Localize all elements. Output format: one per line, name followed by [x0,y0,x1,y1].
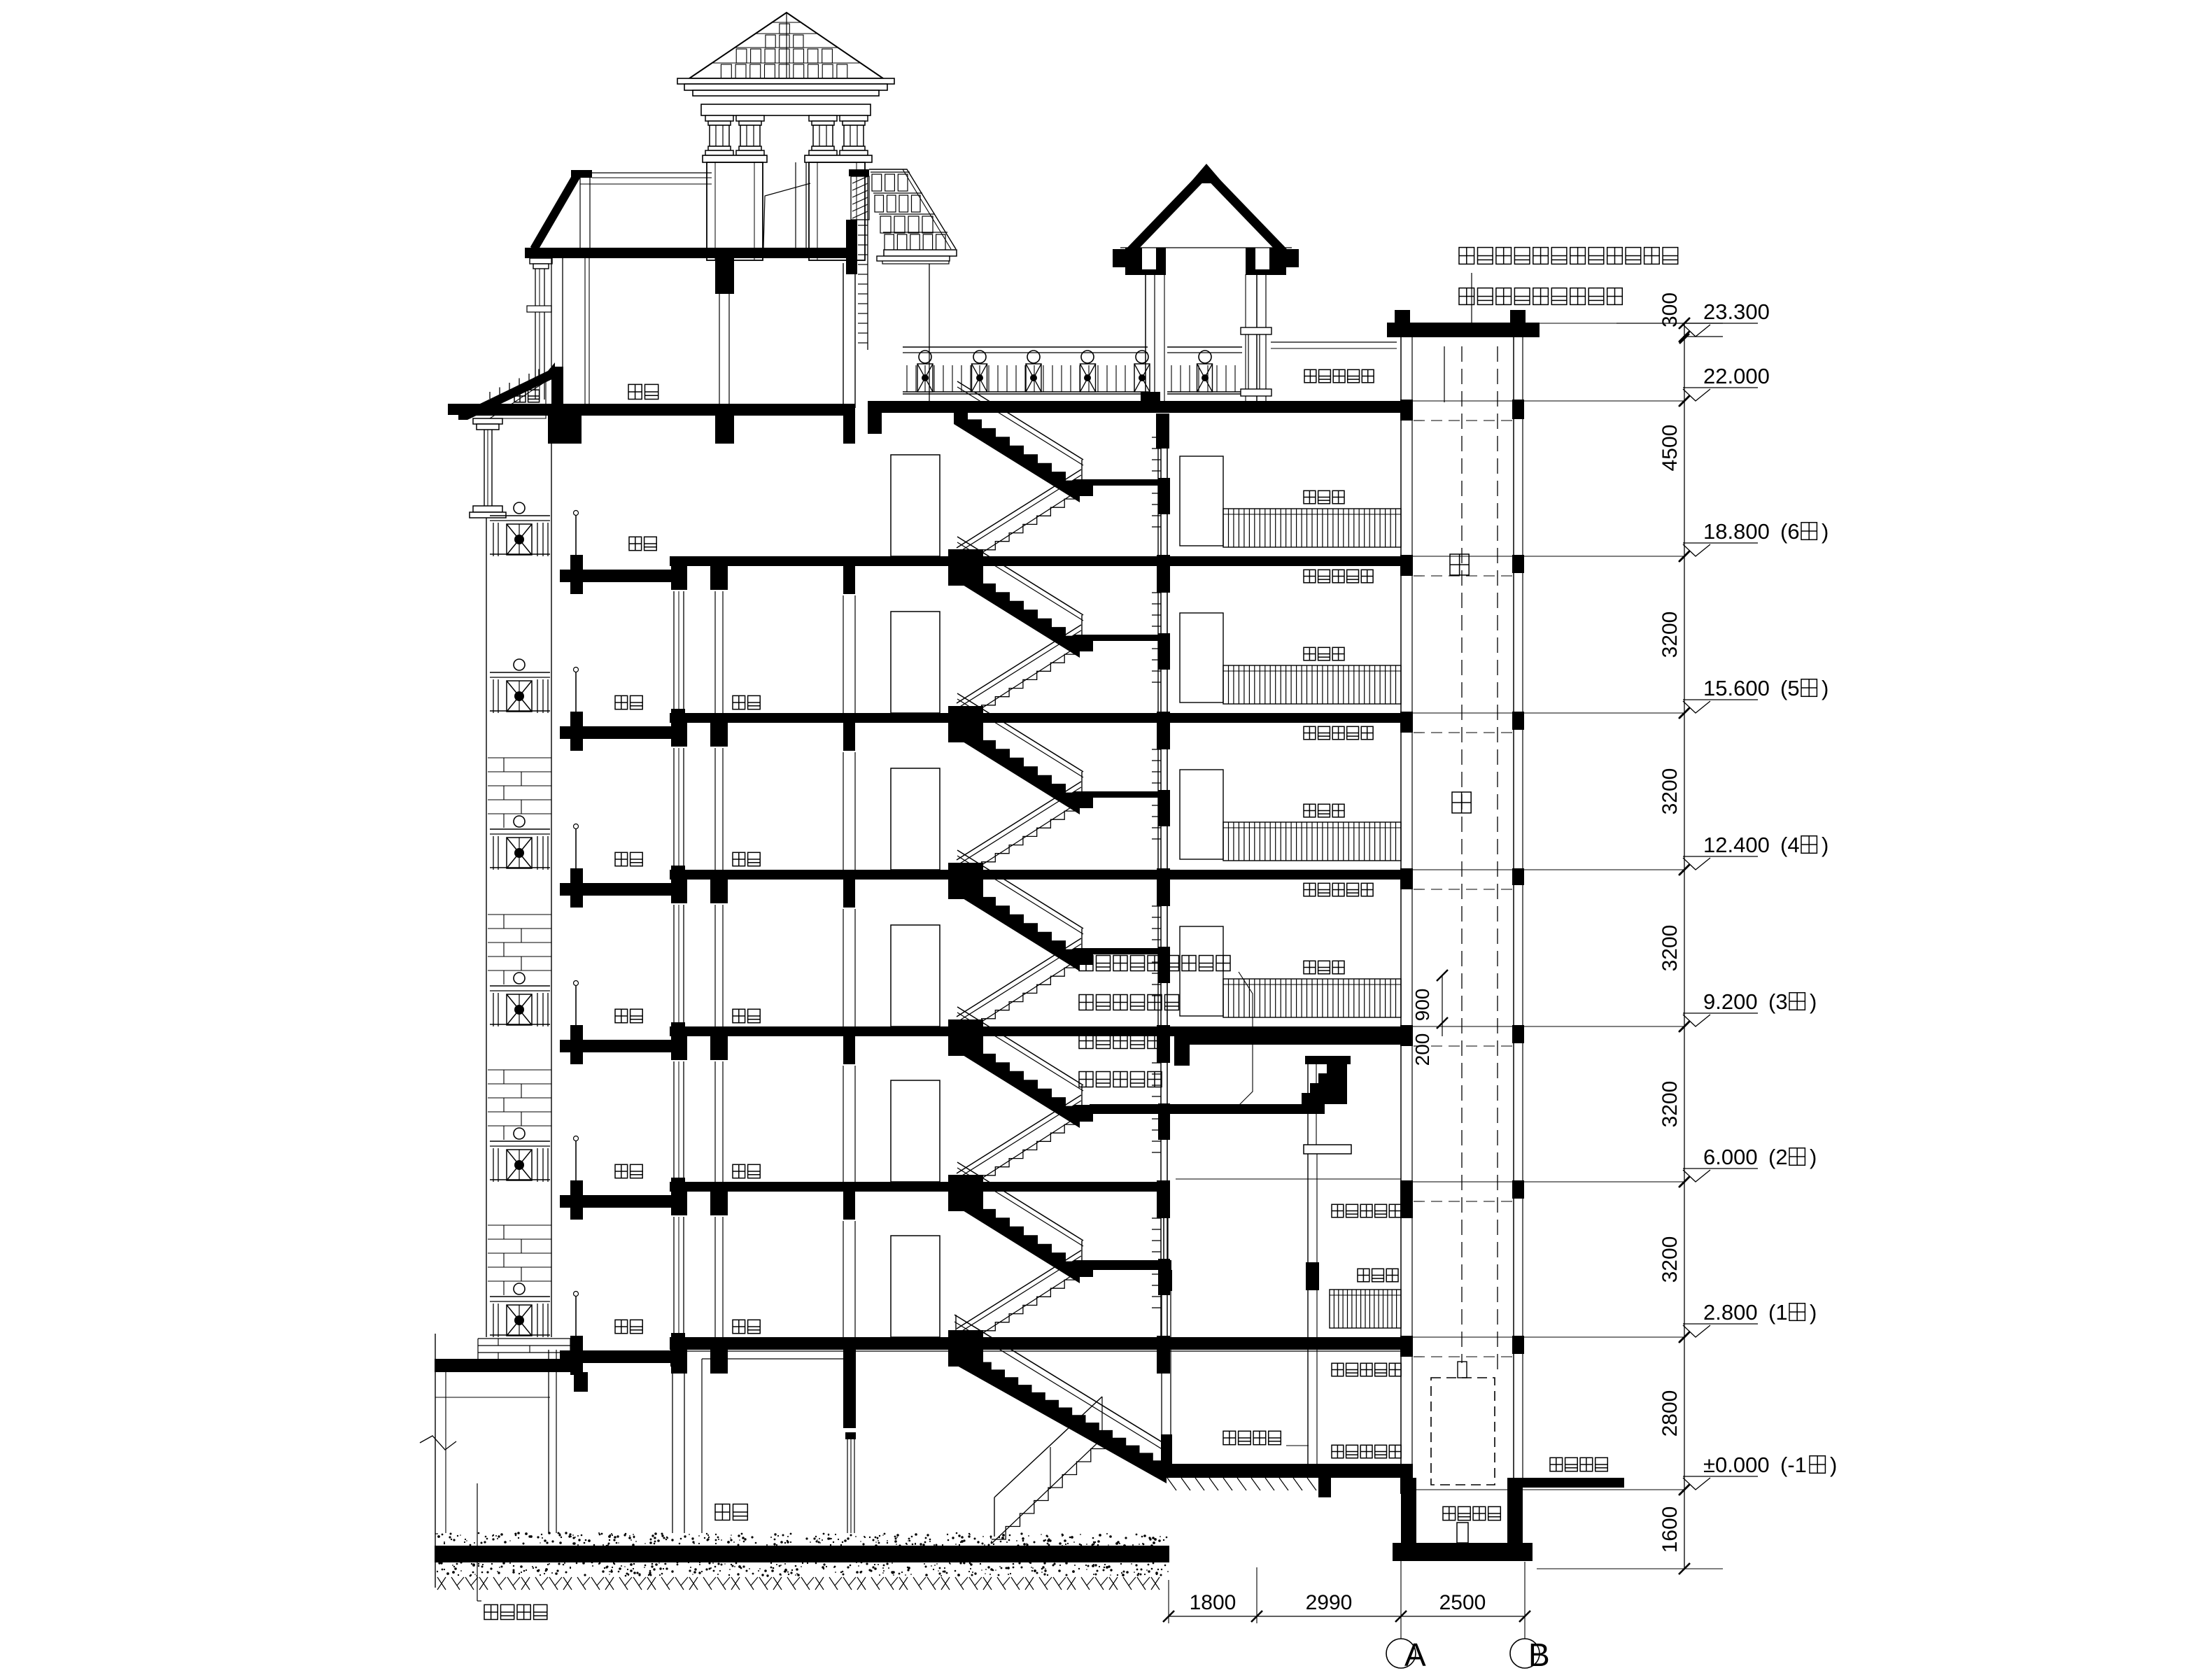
svg-text:18.800: 18.800 [1703,519,1770,544]
svg-text:3200: 3200 [1658,768,1682,815]
svg-text:2500: 2500 [1439,1591,1486,1614]
svg-text:): ) [1810,989,1817,1014]
svg-text:(4: (4 [1780,833,1800,857]
svg-text:): ) [1810,1300,1817,1325]
svg-text:23.300: 23.300 [1703,299,1770,324]
svg-text:22.000: 22.000 [1703,364,1770,388]
svg-text:3200: 3200 [1658,1081,1682,1128]
svg-text:1800: 1800 [1190,1591,1237,1614]
svg-text:): ) [1822,676,1829,700]
svg-text:±0.000: ±0.000 [1703,1453,1770,1477]
svg-text:12.400: 12.400 [1703,833,1770,857]
svg-text:): ) [1810,1145,1817,1169]
svg-text:2800: 2800 [1658,1390,1682,1437]
svg-text:200: 200 [1411,1033,1433,1066]
svg-text:): ) [1822,833,1829,857]
svg-text:(6: (6 [1780,519,1800,544]
svg-text:(3: (3 [1768,989,1788,1014]
svg-text:A: A [1404,1637,1426,1673]
svg-text:3200: 3200 [1658,1236,1682,1283]
svg-text:(1: (1 [1768,1300,1788,1325]
svg-text:9.200: 9.200 [1703,989,1758,1014]
svg-text:): ) [1822,519,1829,544]
svg-text:3200: 3200 [1658,612,1682,658]
svg-text:300: 300 [1658,292,1682,327]
svg-text:6.000: 6.000 [1703,1145,1758,1169]
svg-text:(-1: (-1 [1780,1453,1807,1477]
svg-text:B: B [1528,1637,1550,1673]
svg-text:15.600: 15.600 [1703,676,1770,700]
svg-text:(2: (2 [1768,1145,1788,1169]
svg-text:1600: 1600 [1658,1506,1682,1553]
svg-text:2990: 2990 [1306,1591,1353,1614]
svg-text:(5: (5 [1780,676,1800,700]
svg-text:): ) [1830,1453,1837,1477]
svg-text:900: 900 [1411,989,1433,1022]
svg-text:2.800: 2.800 [1703,1300,1758,1325]
svg-text:4500: 4500 [1658,425,1682,472]
svg-text:3200: 3200 [1658,925,1682,972]
